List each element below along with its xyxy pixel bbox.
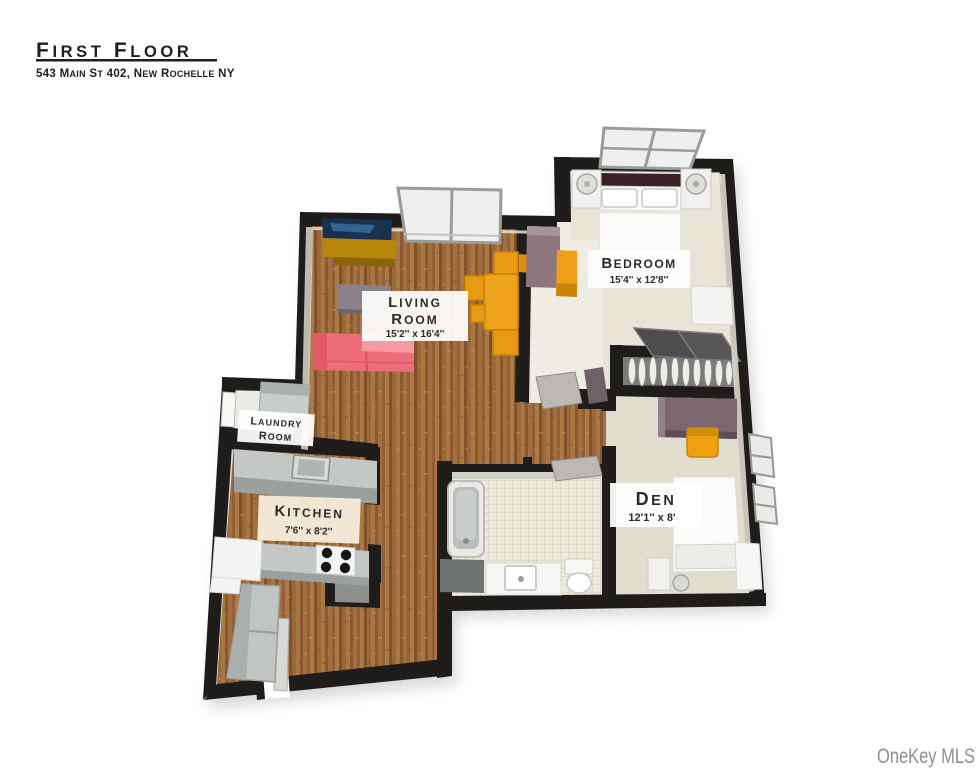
- svg-text:7'6'' x 8'2'': 7'6'' x 8'2'': [285, 525, 333, 538]
- svg-text:LIVING: LIVING: [388, 294, 442, 311]
- svg-text:15'4'' x 12'8'': 15'4'' x 12'8'': [610, 275, 669, 286]
- svg-text:12'1'' x 8': 12'1'' x 8': [628, 512, 676, 524]
- svg-text:ROOM: ROOM: [258, 430, 292, 444]
- svg-text:ROOM: ROOM: [391, 311, 439, 328]
- svg-text:BEDROOM: BEDROOM: [601, 255, 676, 272]
- svg-text:15'2'' x 16'4'': 15'2'' x 16'4'': [386, 329, 445, 340]
- svg-text:FIRST FLOOR: FIRST FLOOR: [36, 39, 192, 62]
- svg-text:OneKey MLS: OneKey MLS: [877, 744, 975, 768]
- svg-text:543 MAIN ST 402, NEW ROCHELLE: 543 MAIN ST 402, NEW ROCHELLE NY: [36, 68, 235, 80]
